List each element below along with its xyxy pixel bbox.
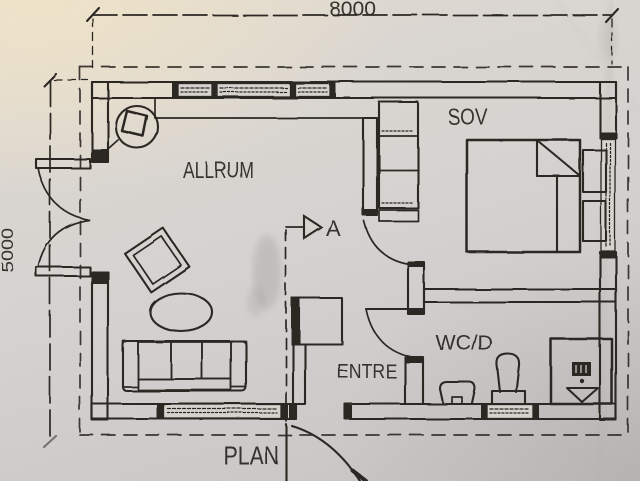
- dimension-height: 5000: [0, 74, 88, 447]
- toner-smudge-small: [247, 287, 265, 317]
- coffee-table: [150, 293, 212, 331]
- paper-crease-horizontal: [455, 290, 640, 306]
- door-swing-lower: [38, 220, 89, 267]
- scanned-floor-plan: 8000 5000: [0, 0, 640, 481]
- section-label: A: [326, 216, 341, 241]
- dimension-label-width: 8000: [329, 0, 376, 21]
- sink: [440, 382, 475, 404]
- door-swing-bathroom: [366, 309, 412, 357]
- door-leaf-lower: [36, 267, 90, 276]
- sofa: [123, 341, 246, 391]
- floor-drain-icon: [567, 388, 598, 402]
- bedroom-furniture: [467, 140, 606, 252]
- section-arrow-icon: [304, 216, 321, 238]
- wall-bottom-right: [345, 404, 616, 419]
- dimension-label-height: 5000: [0, 228, 17, 272]
- wall-top: [92, 82, 616, 98]
- entry-closet: [291, 297, 342, 345]
- room-label-living: ALLRUM: [183, 157, 254, 183]
- window-top-2: [217, 84, 290, 97]
- bed-fold-corner: [538, 141, 579, 175]
- window-bathroom: [481, 403, 539, 420]
- french-doors: [36, 149, 108, 284]
- room-label-bathroom: WC/D: [436, 332, 493, 355]
- room-label-entry: ENTRE: [337, 361, 397, 383]
- toilet: [492, 354, 525, 404]
- window-top-3: [295, 84, 330, 97]
- bed: [467, 140, 580, 252]
- living-room-furniture: [109, 106, 246, 391]
- wall-left-lower: [92, 272, 108, 420]
- plan-linework: 8000 5000: [0, 0, 628, 481]
- bathroom-door: [366, 309, 412, 357]
- door-swing-upper: [38, 168, 89, 220]
- photo-grain-overlay: [0, 0, 640, 481]
- wardrobe-shelf: [379, 210, 418, 221]
- dimension-tick-bottom: [44, 436, 56, 447]
- floor-plan-drawing: 8000 5000: [0, 0, 640, 481]
- window-top-1: [178, 84, 212, 97]
- door-swing-bedroom: [364, 221, 409, 264]
- dimension-width: 8000: [87, 0, 618, 68]
- drawing-title: PLAN: [223, 440, 279, 470]
- wood-stove: [109, 106, 158, 148]
- wall-entry-left: [293, 344, 305, 404]
- toner-smudge-top-right: [598, 16, 618, 60]
- wardrobe: [379, 102, 418, 221]
- entrance-door: [286, 424, 366, 481]
- window-bottom-living: [157, 403, 288, 420]
- wall-post-hall: [408, 262, 424, 314]
- armchair: [125, 228, 189, 292]
- room-label-bedroom: SOV: [448, 104, 489, 130]
- wall-living-hall: [363, 118, 377, 215]
- wall-entry-bathroom: [405, 357, 423, 404]
- door-leaf-upper: [36, 159, 90, 168]
